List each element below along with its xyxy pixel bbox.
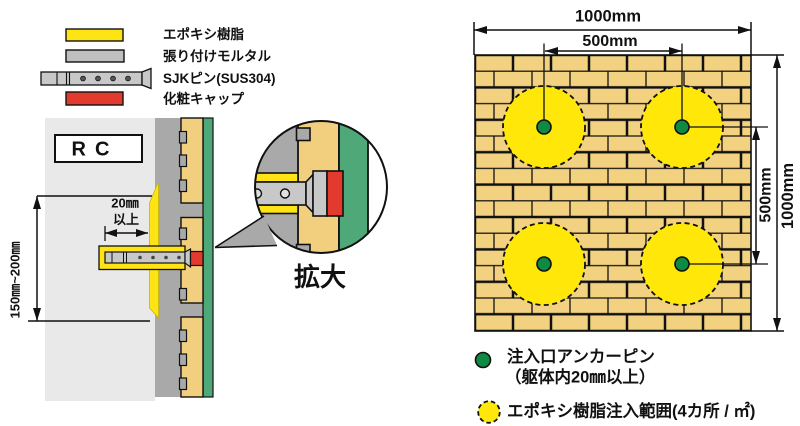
materials-legend: エポキシ樹脂 張り付けモルタル SJKピン(SUS304) 化粧キャップ	[41, 26, 276, 107]
legend-label-cap: 化粧キャップ	[163, 91, 244, 107]
detail-epoxy-bottom	[248, 205, 298, 214]
tile-top	[180, 118, 204, 203]
tile-bottom	[180, 317, 204, 397]
epoxy-swatch	[66, 29, 123, 41]
anchor-pin-bottom-right	[675, 257, 689, 271]
detail-pin-taper	[306, 175, 313, 213]
dim-height-total: 1000mm	[779, 163, 797, 229]
legend-label-pin: SJKピン(SUS304)	[163, 71, 276, 86]
dim-height-half: 500mm	[758, 167, 775, 222]
mortar-swatch	[66, 50, 124, 62]
dim-width-total: 1000mm	[575, 8, 641, 26]
pin-flange	[185, 249, 191, 267]
injection-plan-diagram: 1000mm 500mm 500mm 1000mm	[474, 8, 797, 332]
detail-pin-hole	[253, 189, 262, 198]
surface-strip	[203, 118, 213, 397]
decorative-cap-section	[191, 252, 204, 266]
pitch-range-label: 150㎜~200㎜	[8, 242, 23, 319]
sjk-pin-icon	[41, 69, 151, 89]
embed-depth-line1: 20㎜	[111, 196, 138, 211]
anchor-pin-legend-icon	[476, 353, 491, 368]
detail-pin-hole	[281, 189, 290, 198]
rc-label: RC	[72, 139, 119, 161]
dim-width-half: 500mm	[582, 33, 637, 50]
tile-joint	[181, 203, 203, 218]
anchor-pin-top-left	[537, 120, 551, 134]
anchor-pin-bottom-left	[537, 257, 551, 271]
cross-section-diagram: RC 150㎜~200㎜ 20㎜ 以上	[8, 118, 214, 401]
diagram-canvas: エポキシ樹脂 張り付けモルタル SJKピン(SUS304) 化粧キャップ	[0, 0, 800, 426]
detail-balloon: 拡大	[215, 115, 387, 292]
detail-cap	[327, 171, 343, 216]
detail-pin-flange	[313, 171, 327, 216]
embed-depth-line2: 以上	[113, 212, 139, 227]
tile-repair-diagram-page: エポキシ樹脂 張り付けモルタル SJKピン(SUS304) 化粧キャップ	[0, 0, 800, 426]
legend-label-mortar: 張り付けモルタル	[163, 48, 271, 64]
anchor-pin-label-line2: （躯体内20㎜以上）	[505, 367, 655, 387]
detail-tile-notch	[297, 128, 311, 141]
legend-label-epoxy: エポキシ樹脂	[163, 26, 244, 42]
cap-swatch	[66, 92, 123, 105]
detail-label: 拡大	[294, 262, 346, 292]
plan-legend: 注入口アンカーピン （躯体内20㎜以上） エポキシ樹脂注入範囲(4カ所 / ㎡)	[476, 346, 756, 423]
anchor-pin-label-line1: 注入口アンカーピン	[507, 346, 655, 366]
tile-joint	[181, 303, 203, 317]
anchor-pin-top-right	[675, 120, 689, 134]
epoxy-range-legend-icon	[478, 401, 500, 423]
epoxy-range-label: エポキシ樹脂注入範囲(4カ所 / ㎡)	[507, 401, 755, 421]
